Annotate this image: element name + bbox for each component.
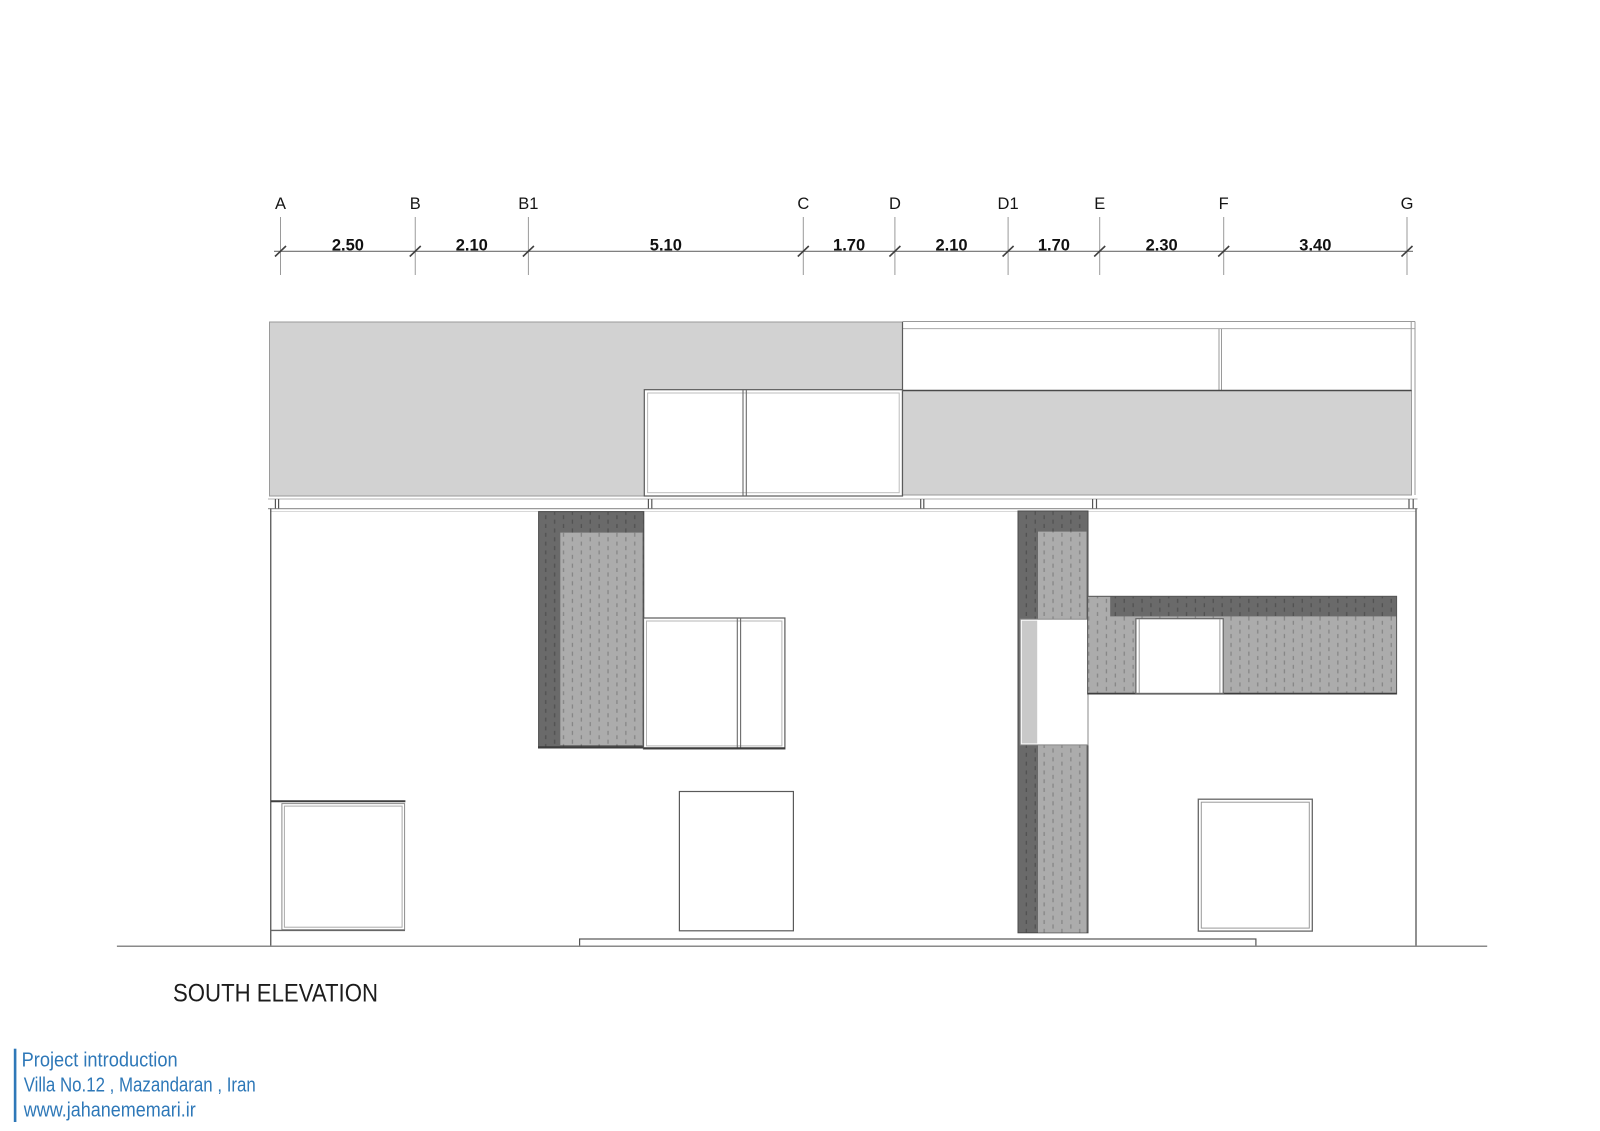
svg-text:2.10: 2.10	[456, 237, 488, 255]
svg-text:C: C	[797, 195, 809, 213]
svg-text:Project introduction: Project introduction	[22, 1049, 178, 1071]
svg-text:D: D	[889, 195, 901, 213]
svg-text:5.10: 5.10	[650, 237, 682, 255]
svg-text:1.70: 1.70	[1038, 237, 1070, 255]
svg-text:SOUTH ELEVATION: SOUTH ELEVATION	[173, 979, 378, 1007]
svg-text:www.jahanememari.ir: www.jahanememari.ir	[23, 1099, 196, 1121]
svg-text:Villa No.12 , Mazandaran , Ira: Villa No.12 , Mazandaran , Iran	[24, 1074, 256, 1096]
svg-text:2.30: 2.30	[1146, 237, 1178, 255]
svg-text:E: E	[1094, 195, 1105, 213]
svg-text:1.70: 1.70	[833, 237, 865, 255]
svg-text:D1: D1	[998, 195, 1019, 213]
svg-text:B: B	[410, 195, 421, 213]
svg-text:3.40: 3.40	[1299, 237, 1331, 255]
svg-text:F: F	[1219, 195, 1229, 213]
svg-text:2.50: 2.50	[332, 237, 364, 255]
svg-text:B1: B1	[518, 195, 538, 213]
svg-text:G: G	[1401, 195, 1414, 213]
svg-text:A: A	[275, 195, 286, 213]
svg-text:2.10: 2.10	[935, 237, 967, 255]
